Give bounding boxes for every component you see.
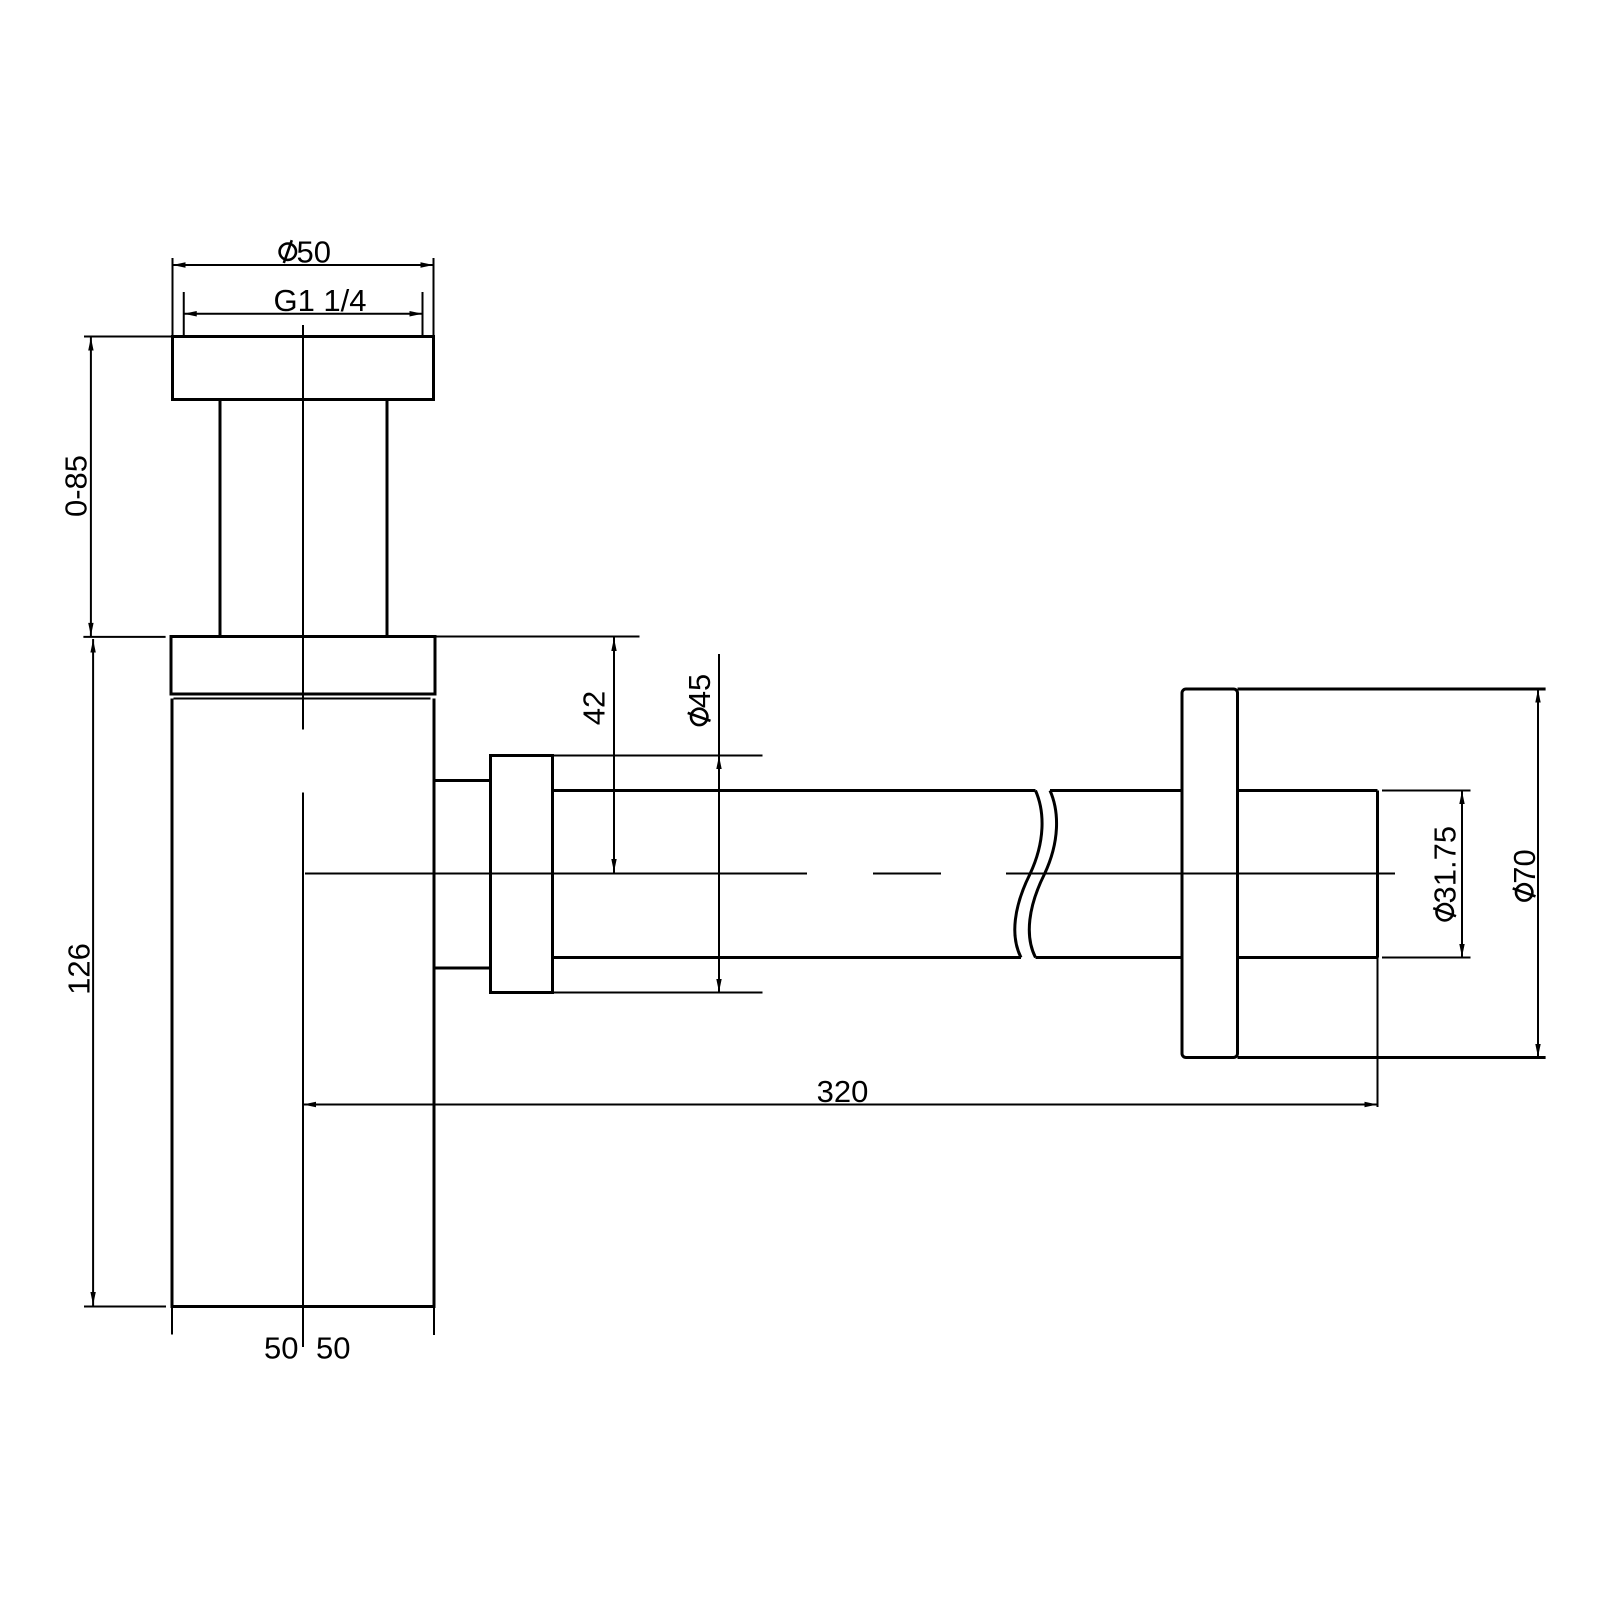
svg-text:G1 1/4: G1 1/4	[273, 283, 366, 318]
svg-text:50: 50	[297, 235, 331, 270]
svg-text:70: 70	[1507, 849, 1542, 883]
svg-text:50: 50	[316, 1331, 350, 1366]
svg-text:42: 42	[577, 691, 612, 725]
svg-text:45: 45	[682, 674, 717, 708]
svg-text:31.75: 31.75	[1428, 826, 1463, 904]
svg-text:126: 126	[62, 943, 97, 995]
svg-text:320: 320	[817, 1074, 869, 1109]
svg-text:0-85: 0-85	[59, 455, 94, 517]
svg-text:50: 50	[264, 1331, 298, 1366]
